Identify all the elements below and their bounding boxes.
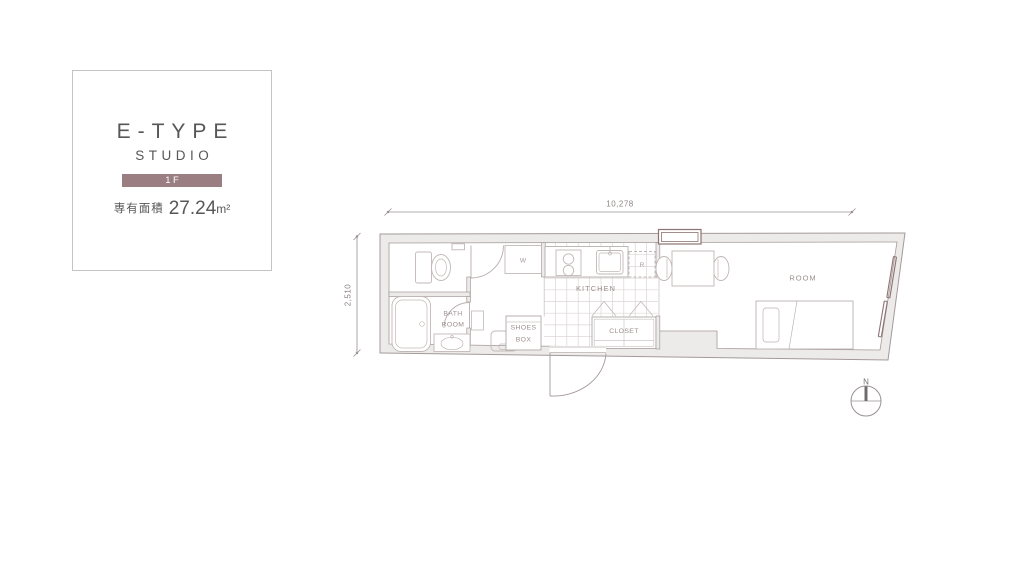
closet-side-wall xyxy=(656,316,660,349)
washer-label: W xyxy=(520,258,527,265)
bath-label-line1: BATH xyxy=(443,311,462,318)
bath-label-line2: ROOM xyxy=(442,322,465,329)
top-window-icon xyxy=(659,230,702,245)
room-label: ROOM xyxy=(789,274,816,283)
kitchen-label: KITCHEN xyxy=(576,284,616,293)
vanity-icon xyxy=(472,311,484,330)
sink-icon xyxy=(597,247,624,274)
compass: N xyxy=(851,378,881,417)
chair-icon xyxy=(656,257,672,281)
north-label: N xyxy=(863,378,869,387)
closet-label: CLOSET xyxy=(609,328,639,335)
washbasin-icon xyxy=(434,334,470,352)
dimension-width: 10,278 xyxy=(385,200,856,216)
shoes-label-line1: SHOES xyxy=(511,325,537,332)
bathtub-icon xyxy=(392,297,431,352)
floor-plan: 10,278 2,510 xyxy=(0,0,1021,580)
dimension-height-value: 2,510 xyxy=(344,284,353,307)
dimension-width-value: 10,278 xyxy=(606,200,634,209)
stove-icon xyxy=(556,250,581,276)
bed-icon xyxy=(756,301,853,349)
shoes-box-icon: SHOES BOX xyxy=(506,316,541,350)
shoes-label-line2: BOX xyxy=(516,337,532,344)
fridge-label: R xyxy=(640,262,645,269)
table-icon xyxy=(672,251,714,286)
page: { "info_card": { "type_name": "E-TYPE", … xyxy=(0,0,1021,580)
chair-icon xyxy=(713,257,729,281)
dimension-height: 2,510 xyxy=(344,233,361,357)
toilet-window-icon xyxy=(452,244,465,250)
